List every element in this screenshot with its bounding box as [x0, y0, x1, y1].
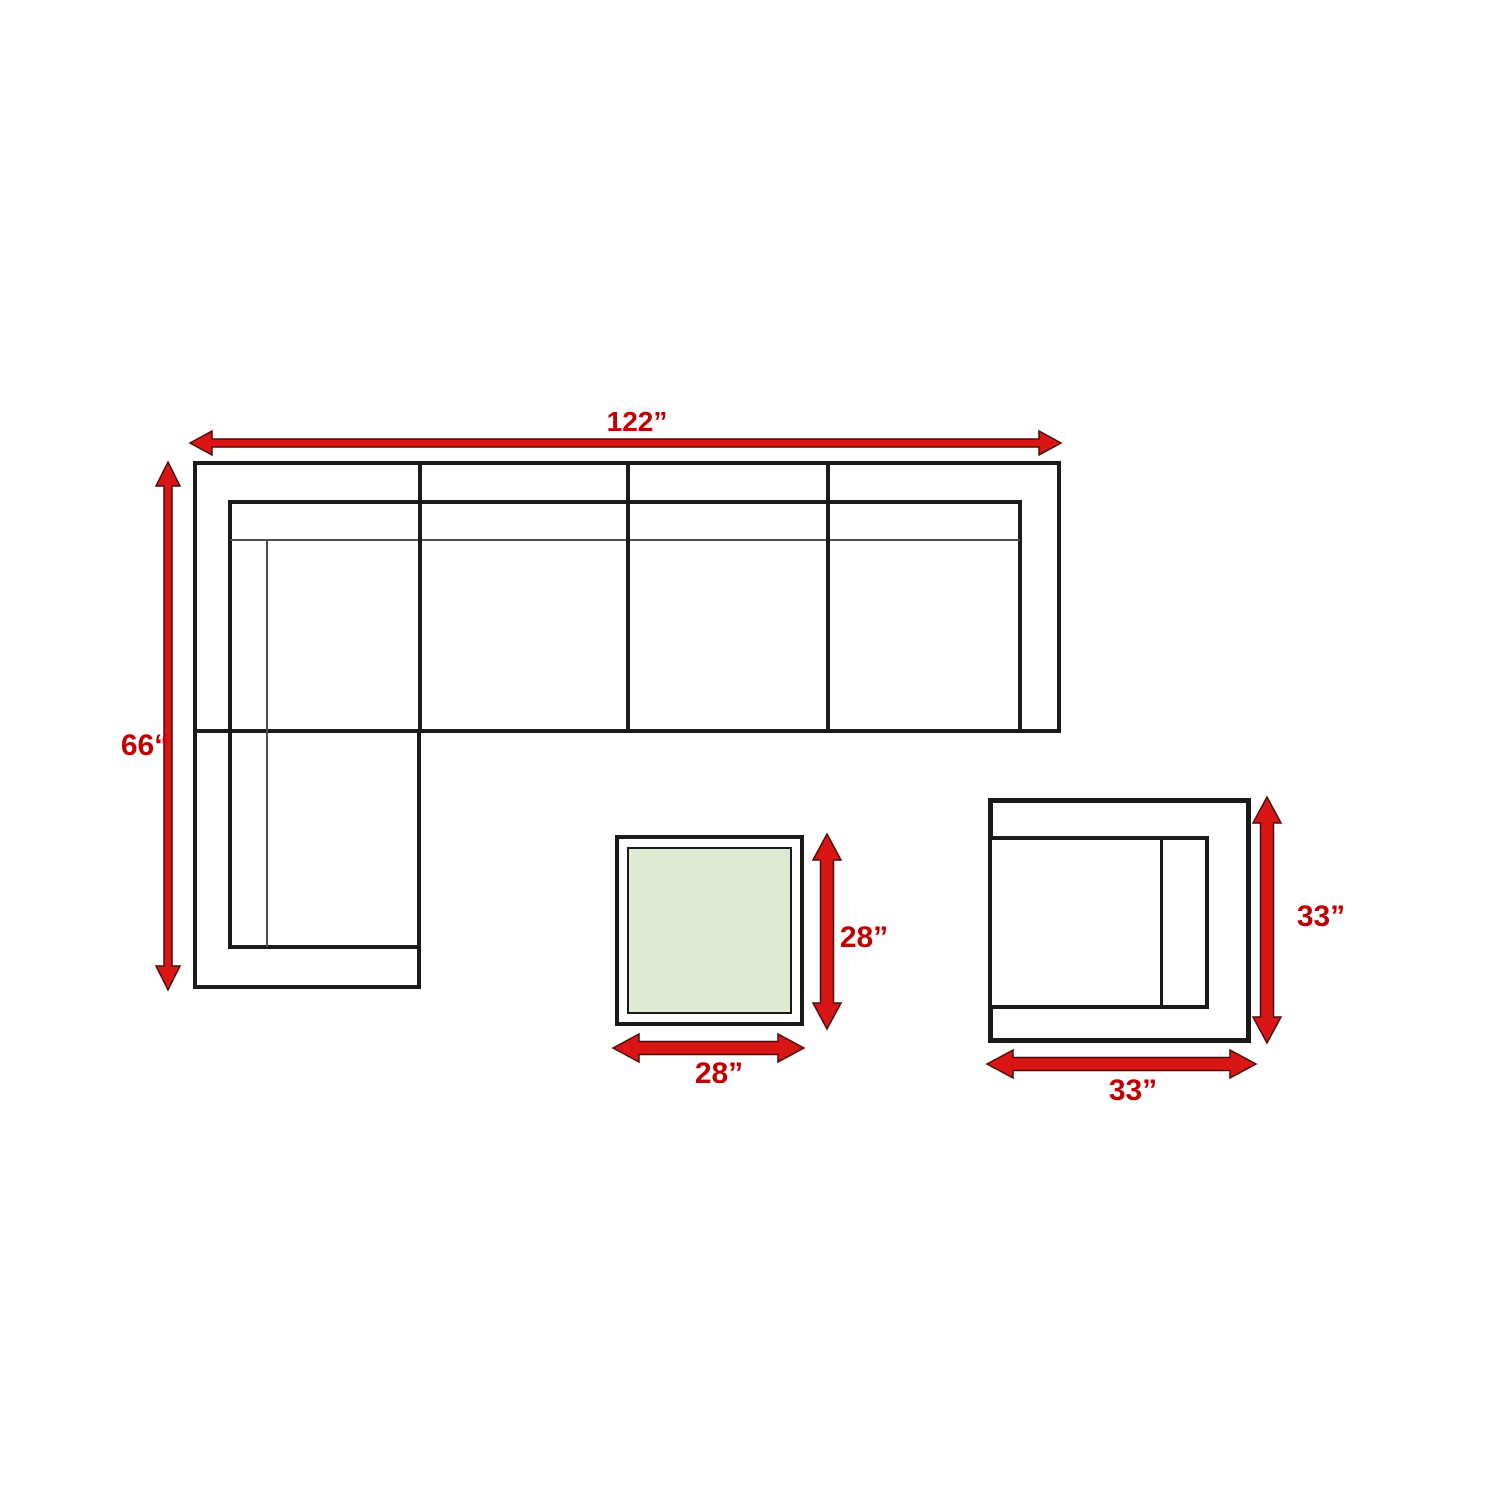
chair-width-label: 33”: [1109, 1076, 1157, 1106]
sofa-depth-label: 66“: [121, 731, 169, 761]
table-glass-top: [627, 847, 792, 1014]
sofa-backrest-top-line: [228, 500, 1022, 504]
table-width-label: 28”: [695, 1059, 743, 1089]
sofa-depth-arrow-icon: [152, 462, 184, 990]
sofa-width-label: 122”: [607, 408, 668, 436]
chair-seat-outline: [988, 836, 1209, 1009]
sofa-chaise-inner-bottom-line: [228, 945, 420, 949]
table-depth-label: 28”: [840, 923, 888, 953]
table-depth-arrow-icon: [811, 834, 843, 1029]
chair-depth-label: 33”: [1297, 902, 1345, 932]
chair-depth-arrow-icon: [1251, 797, 1283, 1043]
sofa-seat-divider-2: [626, 461, 630, 733]
furniture-dimension-diagram: 122” 66“ 28” 28” 33” 33”: [0, 0, 1500, 1500]
sofa-seat-divider-3: [826, 461, 830, 733]
sofa-cushion-seam-left: [266, 539, 268, 947]
sofa-cushion-seam-top: [230, 539, 1020, 541]
sofa-backrest-left-line: [228, 500, 232, 949]
sofa-seat-divider-1: [418, 461, 422, 733]
sofa-armrest-right-inner-line: [1018, 500, 1022, 733]
chair-backrest-line: [1160, 840, 1163, 1005]
